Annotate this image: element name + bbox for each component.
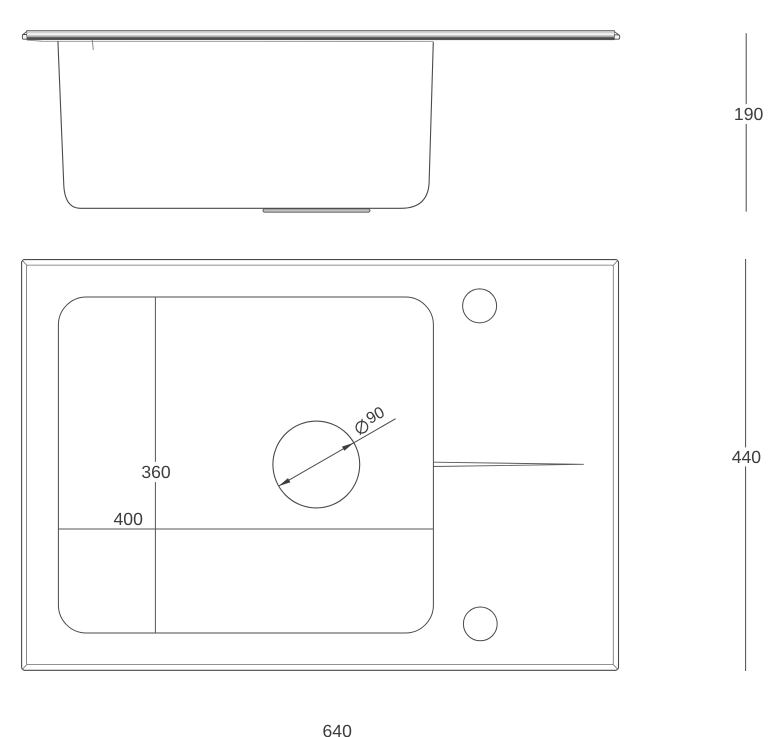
svg-text:440: 440 (732, 447, 762, 467)
svg-text:400: 400 (114, 509, 144, 529)
svg-text:640: 640 (323, 721, 353, 737)
svg-text:360: 360 (141, 462, 171, 482)
svg-text:190: 190 (734, 104, 764, 124)
